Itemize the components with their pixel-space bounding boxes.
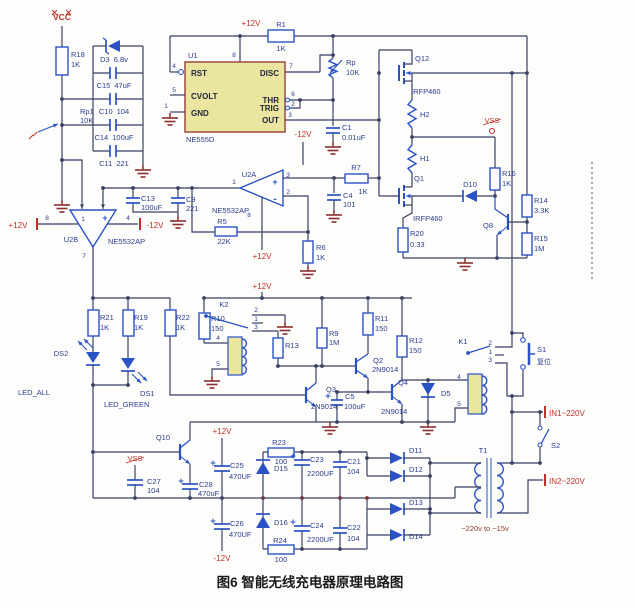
pot-mark — [29, 135, 33, 139]
diode-triangle — [390, 452, 403, 464]
junction-dot — [60, 123, 64, 127]
pin-num: 4 — [457, 374, 461, 381]
ic-part: NE5532AP — [108, 237, 145, 246]
opamp-u2a: C13100uFC9221U2A+-1328NE5532APC4101R71KR… — [101, 163, 379, 278]
wire — [512, 370, 523, 396]
value-label: 1K — [176, 323, 185, 332]
ref-label: D14 — [409, 532, 423, 541]
ic-ref: U1 — [188, 51, 198, 60]
ref-label: DS1 — [140, 389, 155, 398]
contact-circle — [179, 70, 184, 75]
label: C10104 — [99, 107, 129, 116]
value-label: 470uF — [198, 489, 220, 498]
ref-label: C1 — [342, 123, 352, 132]
wire — [495, 196, 508, 218]
junction-dot — [60, 97, 64, 101]
value-label: 1K — [276, 44, 285, 53]
wire — [403, 196, 412, 228]
ref-label: R1 — [276, 20, 286, 29]
caption: 图6 智能无线充电器原理电路图 — [217, 574, 404, 590]
value-label: 1K — [316, 253, 325, 262]
value-label: LED_GREEN — [104, 400, 149, 409]
junction-dot — [428, 507, 432, 511]
junction-dot — [276, 364, 280, 368]
plus-mark: + — [102, 213, 107, 223]
ref-label: C14 — [94, 133, 108, 142]
pin-num: 1 — [488, 349, 492, 356]
value-label: 6.8v — [114, 55, 128, 64]
pin-num: 4 — [172, 63, 176, 70]
wire — [404, 50, 412, 64]
ref-label: R19 — [134, 313, 148, 322]
pin-num: 5 — [216, 361, 220, 368]
pin-out: OUT — [262, 116, 279, 125]
value-label: 150 — [211, 324, 224, 333]
wire — [495, 363, 512, 396]
led-triangle — [86, 352, 100, 363]
value-label: 150 — [409, 346, 422, 355]
part-label: 2N9014 — [372, 365, 398, 374]
value-label: 1K — [71, 60, 80, 69]
wire — [306, 383, 316, 391]
ref-label: C10 — [99, 107, 113, 116]
ref-label: R15 — [534, 234, 548, 243]
timer-u1: +12VR11KU1NE555DRSTCVOLTGNDDISCTHRTRIGOU… — [162, 19, 527, 165]
pin-num: 1 — [232, 179, 236, 186]
junction-dot — [335, 420, 339, 424]
value-label: 22K — [217, 237, 230, 246]
resistor-R16 — [490, 168, 500, 190]
junction-dot — [525, 220, 529, 224]
ref-label: D13 — [409, 498, 423, 507]
pin-num: 3 — [254, 324, 258, 331]
resistor-R15 — [522, 233, 532, 255]
diode-triangle — [256, 462, 270, 474]
ref-label: Q3 — [326, 385, 336, 394]
inductor-zigzag — [408, 100, 416, 128]
n12-label: -12V — [295, 130, 313, 139]
ref-label: C25 — [230, 461, 244, 470]
value-label: 1K — [502, 179, 511, 188]
junction-dot — [377, 176, 381, 180]
value-label: 221 — [116, 159, 129, 168]
pin-num: 7 — [289, 63, 293, 70]
ref-label: C11 — [99, 159, 112, 168]
ref-label: C4 — [343, 191, 353, 200]
ref-label: Q12 — [415, 54, 429, 63]
ic-part: NE5532AP — [212, 206, 249, 215]
coil-winding — [482, 376, 487, 414]
ref-label: S1 — [537, 345, 546, 354]
resistor-R12 — [397, 336, 407, 357]
ref-label: S2 — [551, 441, 560, 450]
junction-dot — [510, 71, 514, 75]
ref-label: D3 — [100, 55, 110, 64]
ref-label: T1 — [479, 446, 488, 455]
resistor-R24 — [268, 545, 294, 554]
resistor-R21 — [88, 310, 99, 336]
ref-label: R16 — [502, 169, 516, 178]
contact-circle — [490, 129, 495, 134]
resistor-R22 — [165, 310, 176, 336]
value-label: 104 — [147, 486, 160, 495]
in2-label: IN2~220V — [549, 477, 585, 486]
pin-num: 3 — [288, 112, 292, 119]
junction-dot — [377, 71, 381, 75]
wire — [497, 480, 543, 513]
pin-disc: DISC — [260, 69, 279, 78]
wire — [103, 38, 106, 40]
p12-label: +12V — [242, 19, 262, 28]
resistor-R7 — [345, 174, 368, 183]
value-label: 10K — [80, 116, 93, 125]
ref-label: C27 — [147, 477, 161, 486]
wire — [283, 196, 308, 241]
diode-triangle — [390, 503, 403, 515]
junction-dot — [538, 461, 542, 465]
resistor-R13 — [273, 338, 283, 358]
arrow-head — [363, 374, 368, 378]
ref-label: Q2 — [373, 356, 383, 365]
junction-dot — [365, 496, 369, 500]
arrow-head — [406, 71, 411, 75]
ref-label: C21 — [347, 457, 361, 466]
ref-label: R7 — [351, 163, 361, 172]
wire — [212, 369, 228, 376]
contact-circle — [521, 365, 526, 370]
value-label: 1K — [358, 187, 367, 196]
relay-arm — [468, 346, 490, 353]
ref-label: R5 — [217, 217, 227, 226]
diode-triangle — [256, 516, 270, 528]
ref-label: D11 — [409, 446, 422, 455]
ref-label: R24 — [273, 536, 287, 545]
resistor-R18 — [56, 47, 68, 75]
pot-mark — [33, 132, 37, 136]
pin-num: 4 — [126, 215, 130, 222]
power-stage: Q12IRFP460H2VSSH1Q1IRFP460D10R161KQ8R200… — [377, 36, 592, 282]
pin-num: 1 — [164, 103, 168, 110]
p12-label: +12V — [213, 427, 233, 436]
wire — [62, 160, 82, 203]
p12-label: +12V — [253, 282, 273, 291]
value-label: 47uF — [114, 81, 132, 90]
label: D36.8v — [100, 55, 128, 64]
pin-num: 5 — [457, 401, 461, 408]
arrow-head — [406, 194, 411, 198]
part-label: IRFP460 — [411, 87, 441, 96]
resistor-R14 — [522, 195, 532, 217]
ref-label: Q10 — [156, 433, 170, 442]
label: C11221 — [99, 159, 129, 168]
pin-trig: TRIG — [260, 104, 279, 113]
pin-num: 8 — [45, 215, 49, 222]
value-label: 0.01uF — [342, 133, 366, 142]
ref-label: K1 — [458, 337, 467, 346]
ref-label: C9 — [186, 195, 196, 204]
value-label: 104 — [347, 534, 360, 543]
ref-label: H1 — [420, 154, 430, 163]
wire — [356, 354, 368, 362]
value-label: 1M — [329, 338, 339, 347]
value-label: 101 — [343, 200, 356, 209]
coil-winding — [242, 339, 246, 374]
ref-label: R9 — [329, 329, 339, 338]
diode-triangle — [108, 40, 120, 52]
diode-triangle — [421, 383, 435, 395]
ref-label: R12 — [409, 336, 423, 345]
minus-mark: - — [273, 194, 276, 205]
resistor-R1 — [268, 30, 294, 42]
value-label: 100 — [275, 555, 288, 564]
part-label: 2N9014 — [381, 407, 407, 416]
value-label: LED_ALL — [18, 388, 50, 397]
pin-gnd: GND — [191, 109, 209, 118]
resistor-R6 — [303, 241, 313, 263]
figure-caption: 图6 智能无线充电器原理电路图 — [217, 574, 404, 590]
resistor-R20 — [398, 228, 408, 252]
junction-dot — [400, 420, 404, 424]
ref-label: Q8 — [483, 221, 493, 230]
part-label: 2N9014 — [311, 402, 337, 411]
diode-triangle — [390, 529, 403, 541]
ref-label: Q4 — [398, 378, 408, 387]
value-label: 2200UF — [307, 469, 334, 478]
value-label: 150 — [375, 324, 388, 333]
value-label: 100uF — [112, 133, 134, 142]
diode-triangle — [465, 190, 477, 202]
value-label: 1K — [100, 323, 109, 332]
mains-input: IN1~220VS2IN2~220V — [497, 406, 585, 513]
ref-label: Rp1 — [80, 107, 94, 116]
value-label: 2200UF — [307, 535, 334, 544]
in1-label: IN1~220V — [549, 409, 585, 418]
pin-num: 6 — [291, 91, 295, 98]
contact-circle — [286, 106, 290, 110]
value-label: 100 — [275, 457, 288, 466]
ref-label: R11 — [375, 314, 388, 323]
ref-label: C28 — [199, 480, 213, 489]
ref-label: R21 — [100, 313, 114, 322]
value-label: 1M — [534, 244, 544, 253]
junction-dot — [495, 256, 499, 260]
junction-dot — [426, 420, 430, 424]
pin-num: 1 — [254, 316, 258, 323]
ref-label: R18 — [71, 50, 85, 59]
ref-label: C23 — [310, 455, 324, 464]
ref-label: C26 — [230, 519, 244, 528]
ref-label: C24 — [310, 521, 324, 530]
pin-num: 8 — [232, 52, 236, 59]
resistor-R11 — [363, 313, 373, 335]
diode-triangle — [390, 470, 403, 482]
value-label: 470UF — [229, 472, 252, 481]
junction-dot — [428, 474, 432, 478]
part-label: IRFP460 — [413, 214, 443, 223]
ref-label: D16 — [274, 518, 288, 527]
wire — [512, 333, 523, 337]
filter-caps: VSSC27104Q10C28470uF+12VC25470UFC26470UF… — [93, 422, 455, 564]
inductor-zigzag — [329, 58, 337, 78]
switch-arm — [541, 429, 549, 444]
resistor-R23 — [268, 448, 294, 457]
contact-circle — [538, 426, 542, 430]
relay-coil-k1 — [468, 374, 482, 414]
value-label: 1K — [134, 323, 143, 332]
wire — [495, 333, 512, 347]
schematic-canvas: R181KVCCRp110KD36.8vC1547uFC10104C14100u… — [0, 0, 635, 608]
coil-winding — [475, 463, 481, 513]
arrow-head — [101, 204, 105, 209]
ic-ref: U2B — [64, 235, 79, 244]
value-label: 104 — [117, 107, 130, 116]
label: C14100uF — [94, 133, 133, 142]
opamp-u2b: 1++12V-12V84U2BNE5532AP7 — [9, 160, 165, 298]
ref-label: C15 — [97, 81, 111, 90]
ref-label: Rp — [346, 58, 356, 67]
arrow-head — [53, 124, 58, 128]
ref-label: R14 — [534, 196, 548, 205]
transformer-t1: T1~220v to ~15v — [430, 446, 509, 533]
pin-num: 2 — [254, 307, 258, 314]
ref-label: R23 — [272, 438, 286, 447]
pin-num: 2 — [291, 101, 295, 108]
contact-circle — [521, 338, 526, 343]
ref-label: D12 — [409, 465, 423, 474]
junction-dot — [366, 390, 370, 394]
n12-label: -12V — [214, 554, 232, 563]
value-label: 100uF — [141, 203, 163, 212]
coil-winding — [497, 463, 503, 513]
value-label: 3.3K — [534, 206, 549, 215]
value-label: 470UF — [229, 530, 252, 539]
junction-dot — [428, 511, 432, 515]
pin-num: 5 — [172, 87, 176, 94]
value-label: 0.33 — [410, 240, 425, 249]
ref-label: D10 — [463, 180, 477, 189]
ref-label: R22 — [176, 313, 190, 322]
relay-k1: 45K1213 — [455, 333, 512, 422]
reset-label: 复位 — [537, 357, 551, 366]
p12-label: +12V — [9, 221, 29, 230]
ref-label: K2 — [219, 300, 228, 309]
junction-dot — [126, 383, 130, 387]
contact-circle — [286, 98, 290, 102]
junction-dot — [377, 118, 381, 122]
resistor-R19 — [123, 310, 134, 336]
value-label: 104 — [347, 467, 360, 476]
ref-label: C22 — [347, 523, 361, 532]
ref-label: Q1 — [414, 174, 424, 183]
ref-label: C5 — [345, 392, 355, 401]
voltage-note: ~220v to ~15v — [461, 524, 509, 533]
pin-rst: RST — [191, 69, 207, 78]
led-triangle — [121, 358, 135, 369]
resistor-R5 — [215, 227, 237, 236]
ref-label: D5 — [441, 389, 451, 398]
label: C1547uF — [97, 81, 132, 90]
pin-num: 2 — [488, 340, 492, 347]
junction-dot — [428, 461, 432, 465]
pin-num: 7 — [82, 253, 86, 260]
wire — [106, 52, 109, 54]
pin-num: 1 — [81, 216, 85, 223]
wire — [180, 440, 190, 448]
junction-dot — [331, 34, 335, 38]
ic-part: NE555D — [186, 135, 215, 144]
inductor-zigzag — [408, 145, 416, 173]
value-label: 100uF — [344, 402, 366, 411]
arrow-head — [80, 204, 84, 209]
n12-label: -12V — [147, 221, 165, 230]
p12-label: +12V — [253, 252, 273, 261]
ref-label: R13 — [285, 341, 299, 350]
pin-num: 2 — [286, 189, 290, 196]
left-bias-network: R181KVCCRp110KD36.8vC1547uFC10104C14100u… — [29, 10, 151, 212]
pin-num: 3 — [488, 357, 492, 364]
resistor-R9 — [317, 328, 327, 348]
pin-num: 4 — [216, 335, 220, 342]
ref-label: H2 — [420, 110, 430, 119]
junction-dot — [238, 34, 242, 38]
ref-label: DS2 — [54, 349, 69, 358]
value-label: 10K — [346, 68, 359, 77]
ic-ref: U2A — [242, 170, 257, 179]
junction-dot — [298, 98, 302, 102]
ref-label: C13 — [141, 194, 155, 203]
relay-coil-k2 — [228, 337, 242, 375]
pin-cvolt: CVOLT — [191, 92, 218, 101]
circuit-schematic: R181KVCCRp110KD36.8vC1547uFC10104C14100u… — [0, 0, 635, 608]
wire — [455, 408, 468, 422]
ref-label: R6 — [316, 243, 326, 252]
plus-mark: + — [272, 177, 277, 187]
ref-label: R20 — [410, 229, 424, 238]
